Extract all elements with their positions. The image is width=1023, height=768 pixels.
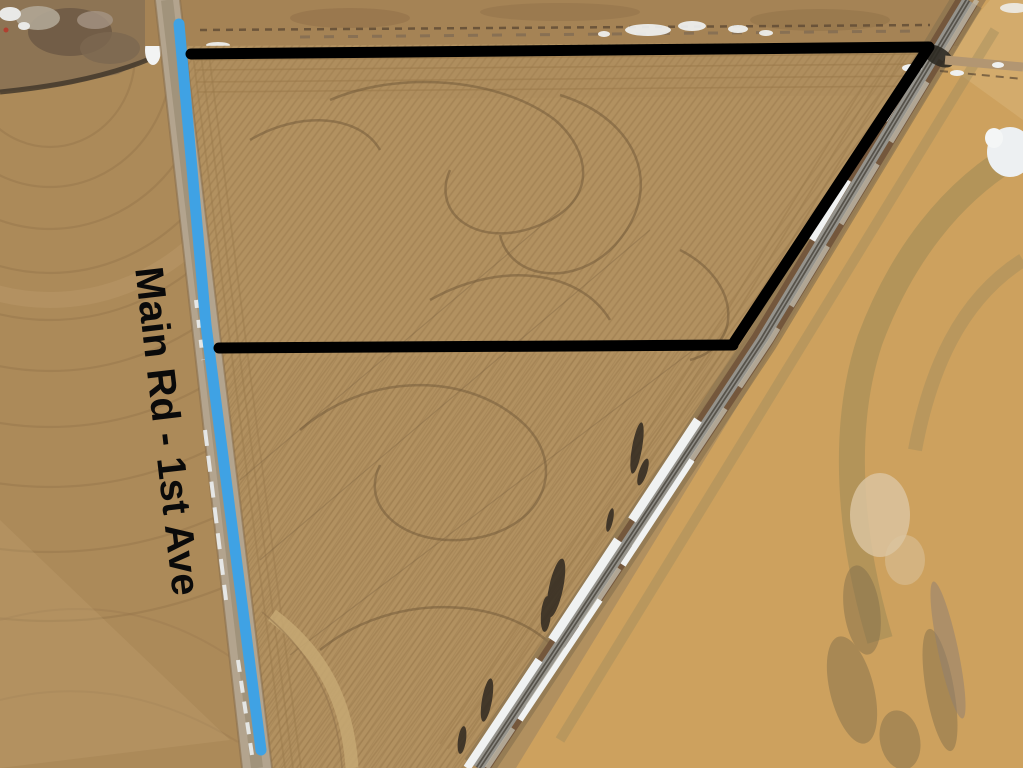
aerial-photo: Main Rd - 1st Ave [0,0,1023,768]
parcel-boundary-south [219,345,733,348]
snow-patch [0,7,21,21]
